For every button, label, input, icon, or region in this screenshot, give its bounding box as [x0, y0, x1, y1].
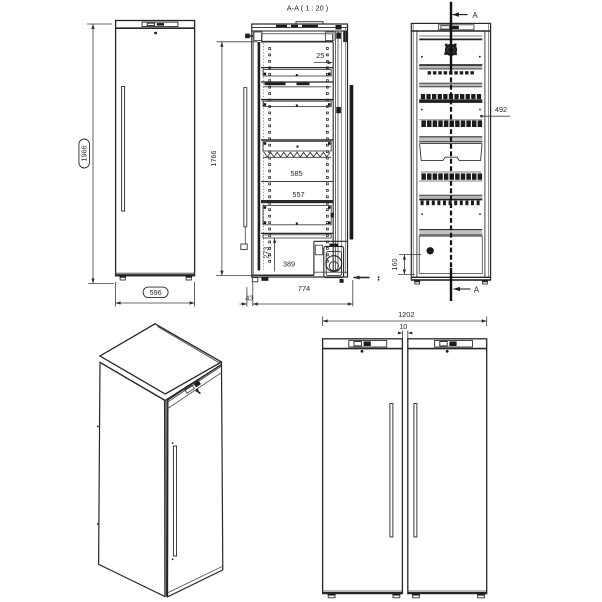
svg-text:A-A ( 1 : 20 ): A-A ( 1 : 20 ) — [287, 4, 329, 13]
svg-text:1966: 1966 — [80, 146, 89, 162]
svg-text:25: 25 — [316, 51, 324, 60]
svg-text:43: 43 — [245, 294, 253, 303]
svg-text:A: A — [474, 286, 480, 295]
svg-text:774: 774 — [298, 284, 310, 293]
svg-text:585: 585 — [290, 169, 302, 178]
svg-text:389: 389 — [283, 260, 295, 269]
svg-text:1202: 1202 — [398, 310, 414, 319]
svg-text:596: 596 — [150, 288, 162, 297]
svg-text:1766: 1766 — [209, 151, 218, 167]
svg-text:557: 557 — [292, 190, 304, 199]
svg-text:A: A — [472, 11, 478, 20]
svg-text:273: 273 — [262, 247, 271, 259]
svg-text:492: 492 — [495, 105, 507, 114]
svg-text:160: 160 — [390, 259, 399, 271]
svg-text:10: 10 — [399, 322, 407, 331]
